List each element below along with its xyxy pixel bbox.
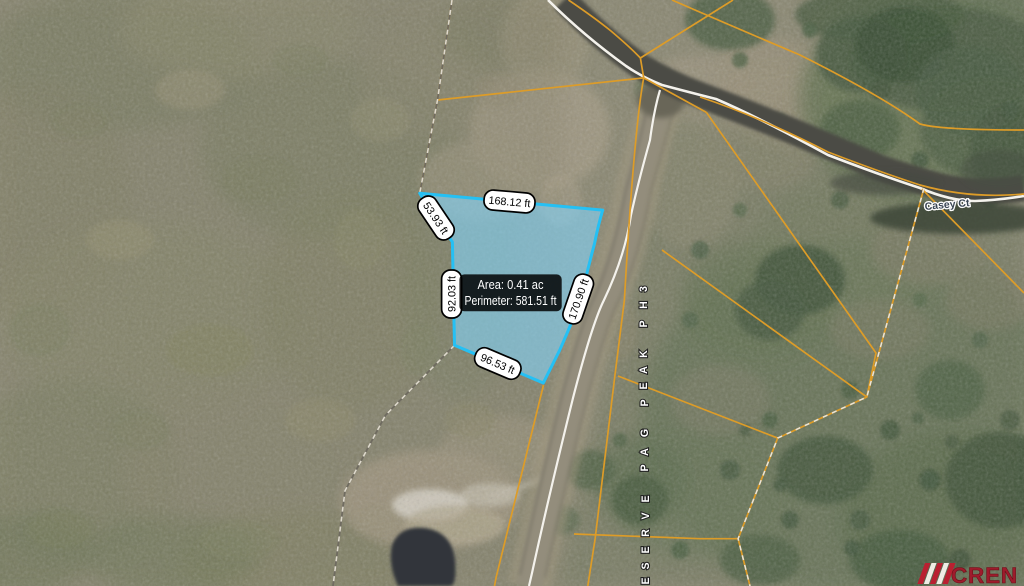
svg-text:K: K: [638, 350, 650, 358]
svg-text:G: G: [639, 429, 651, 437]
svg-text:H: H: [638, 301, 650, 309]
svg-text:P: P: [638, 320, 650, 327]
svg-text:R: R: [640, 529, 652, 537]
svg-text:E: E: [640, 546, 652, 553]
svg-text:Perimeter: 581.51 ft: Perimeter: 581.51 ft: [465, 294, 557, 308]
svg-text:S: S: [640, 562, 652, 569]
svg-text:E: E: [640, 577, 652, 584]
svg-text:V: V: [640, 512, 652, 519]
svg-text:A: A: [638, 366, 650, 374]
svg-text:P: P: [639, 464, 651, 471]
svg-text:E: E: [640, 495, 652, 502]
svg-text:3: 3: [638, 286, 650, 292]
svg-text:92.03 ft: 92.03 ft: [447, 276, 459, 312]
svg-text:CREN: CREN: [951, 563, 1018, 586]
svg-text:Area: 0.41 ac: Area: 0.41 ac: [478, 278, 544, 292]
svg-text:P: P: [639, 399, 651, 406]
svg-text:A: A: [639, 448, 651, 456]
svg-text:E: E: [638, 382, 650, 389]
